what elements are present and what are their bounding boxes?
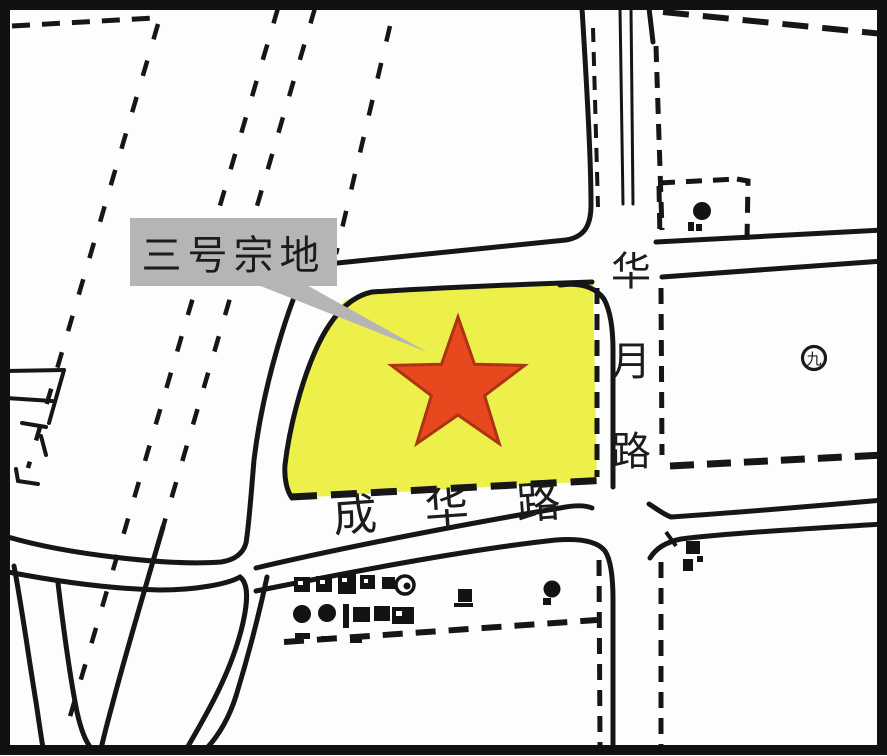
road-edge [8, 572, 247, 748]
parcel-callout-label: 三号宗地 [142, 223, 326, 281]
circled-symbol-text: 九 [806, 351, 821, 368]
dashed-road-line [599, 560, 600, 745]
parcel-callout: 三号宗地 [130, 218, 337, 286]
map-svg: 九 [0, 0, 887, 756]
road-edge [656, 230, 883, 242]
road-median-line [631, 8, 633, 204]
road-edge [14, 566, 43, 748]
road-edge [649, 500, 883, 517]
dashed-boundary [336, 26, 390, 254]
dashed-road-line [656, 46, 662, 230]
dashed-boundary [64, 8, 278, 737]
road-edge [649, 8, 653, 42]
dashed-boundary [12, 18, 154, 26]
road-edge [308, 8, 591, 266]
dashed-boundary [670, 455, 883, 466]
road-edge [662, 261, 883, 277]
left-edge-structure [6, 370, 64, 484]
road-edge [207, 577, 267, 748]
road-edge [256, 539, 613, 748]
road-label-huayue: 华月路 [607, 250, 647, 520]
dashed-road-line [661, 288, 662, 455]
circled-symbol-icon: 九 [803, 347, 826, 370]
landmark-dot-icon [688, 202, 711, 231]
dashed-boundary [663, 12, 883, 34]
dashed-road-line [593, 28, 598, 207]
road-median-line [620, 8, 623, 204]
road-edge [650, 524, 883, 558]
map-canvas: 九 三号宗地 华月路 成华路 [0, 0, 887, 756]
